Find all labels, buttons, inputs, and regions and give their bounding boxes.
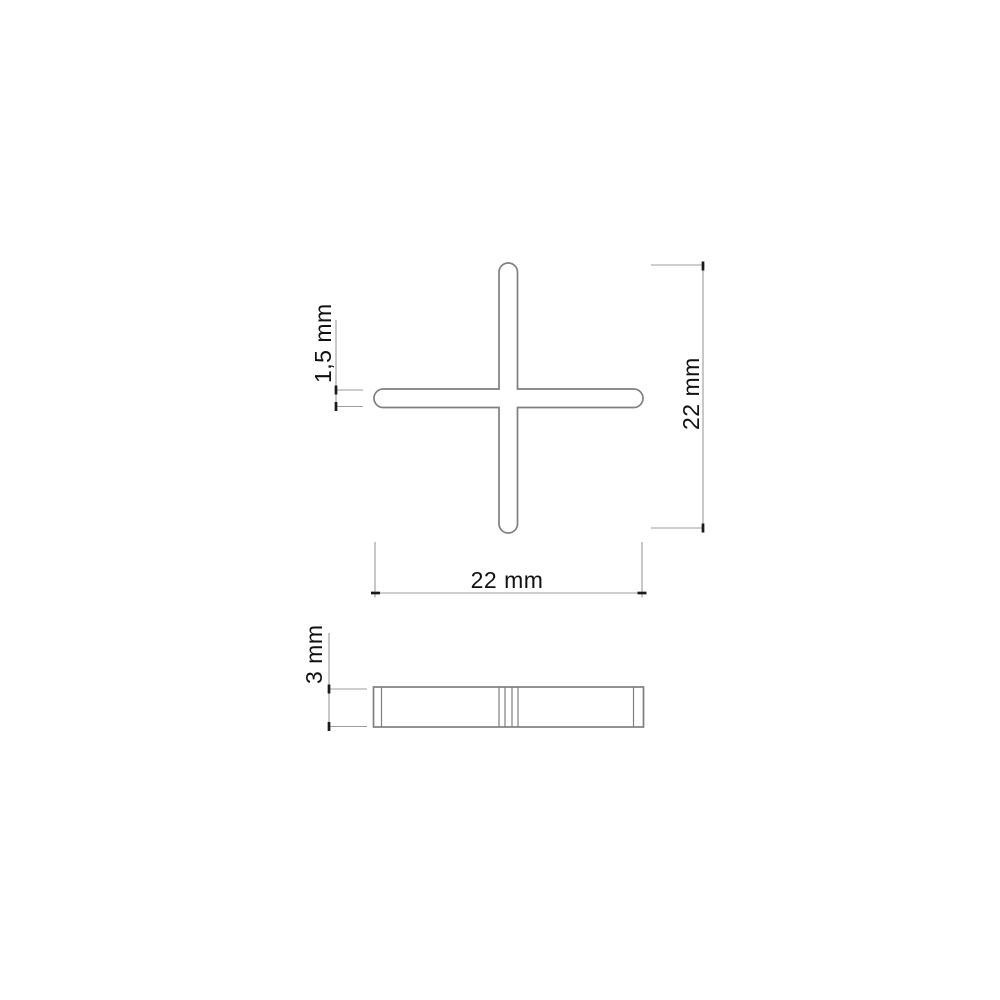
technical-drawing: 1,5 mm 22 mm 22 mm xyxy=(0,0,1000,1000)
dimension-label: 3 mm xyxy=(301,625,327,685)
dimension-label: 22 mm xyxy=(471,567,544,593)
dimension-label: 22 mm xyxy=(678,357,704,430)
cross-outline xyxy=(374,263,643,533)
top-view xyxy=(374,263,643,533)
dimension-overall-width: 22 mm xyxy=(371,542,647,598)
dimension-overall-height: 22 mm xyxy=(651,262,705,533)
drawing-canvas: 1,5 mm 22 mm 22 mm xyxy=(0,0,1000,1000)
dimension-arm-thickness: 1,5 mm xyxy=(310,303,363,411)
side-view xyxy=(374,687,644,727)
dimension-thickness: 3 mm xyxy=(301,625,367,732)
dimension-label: 1,5 mm xyxy=(310,303,336,383)
side-view-outline xyxy=(374,687,644,727)
